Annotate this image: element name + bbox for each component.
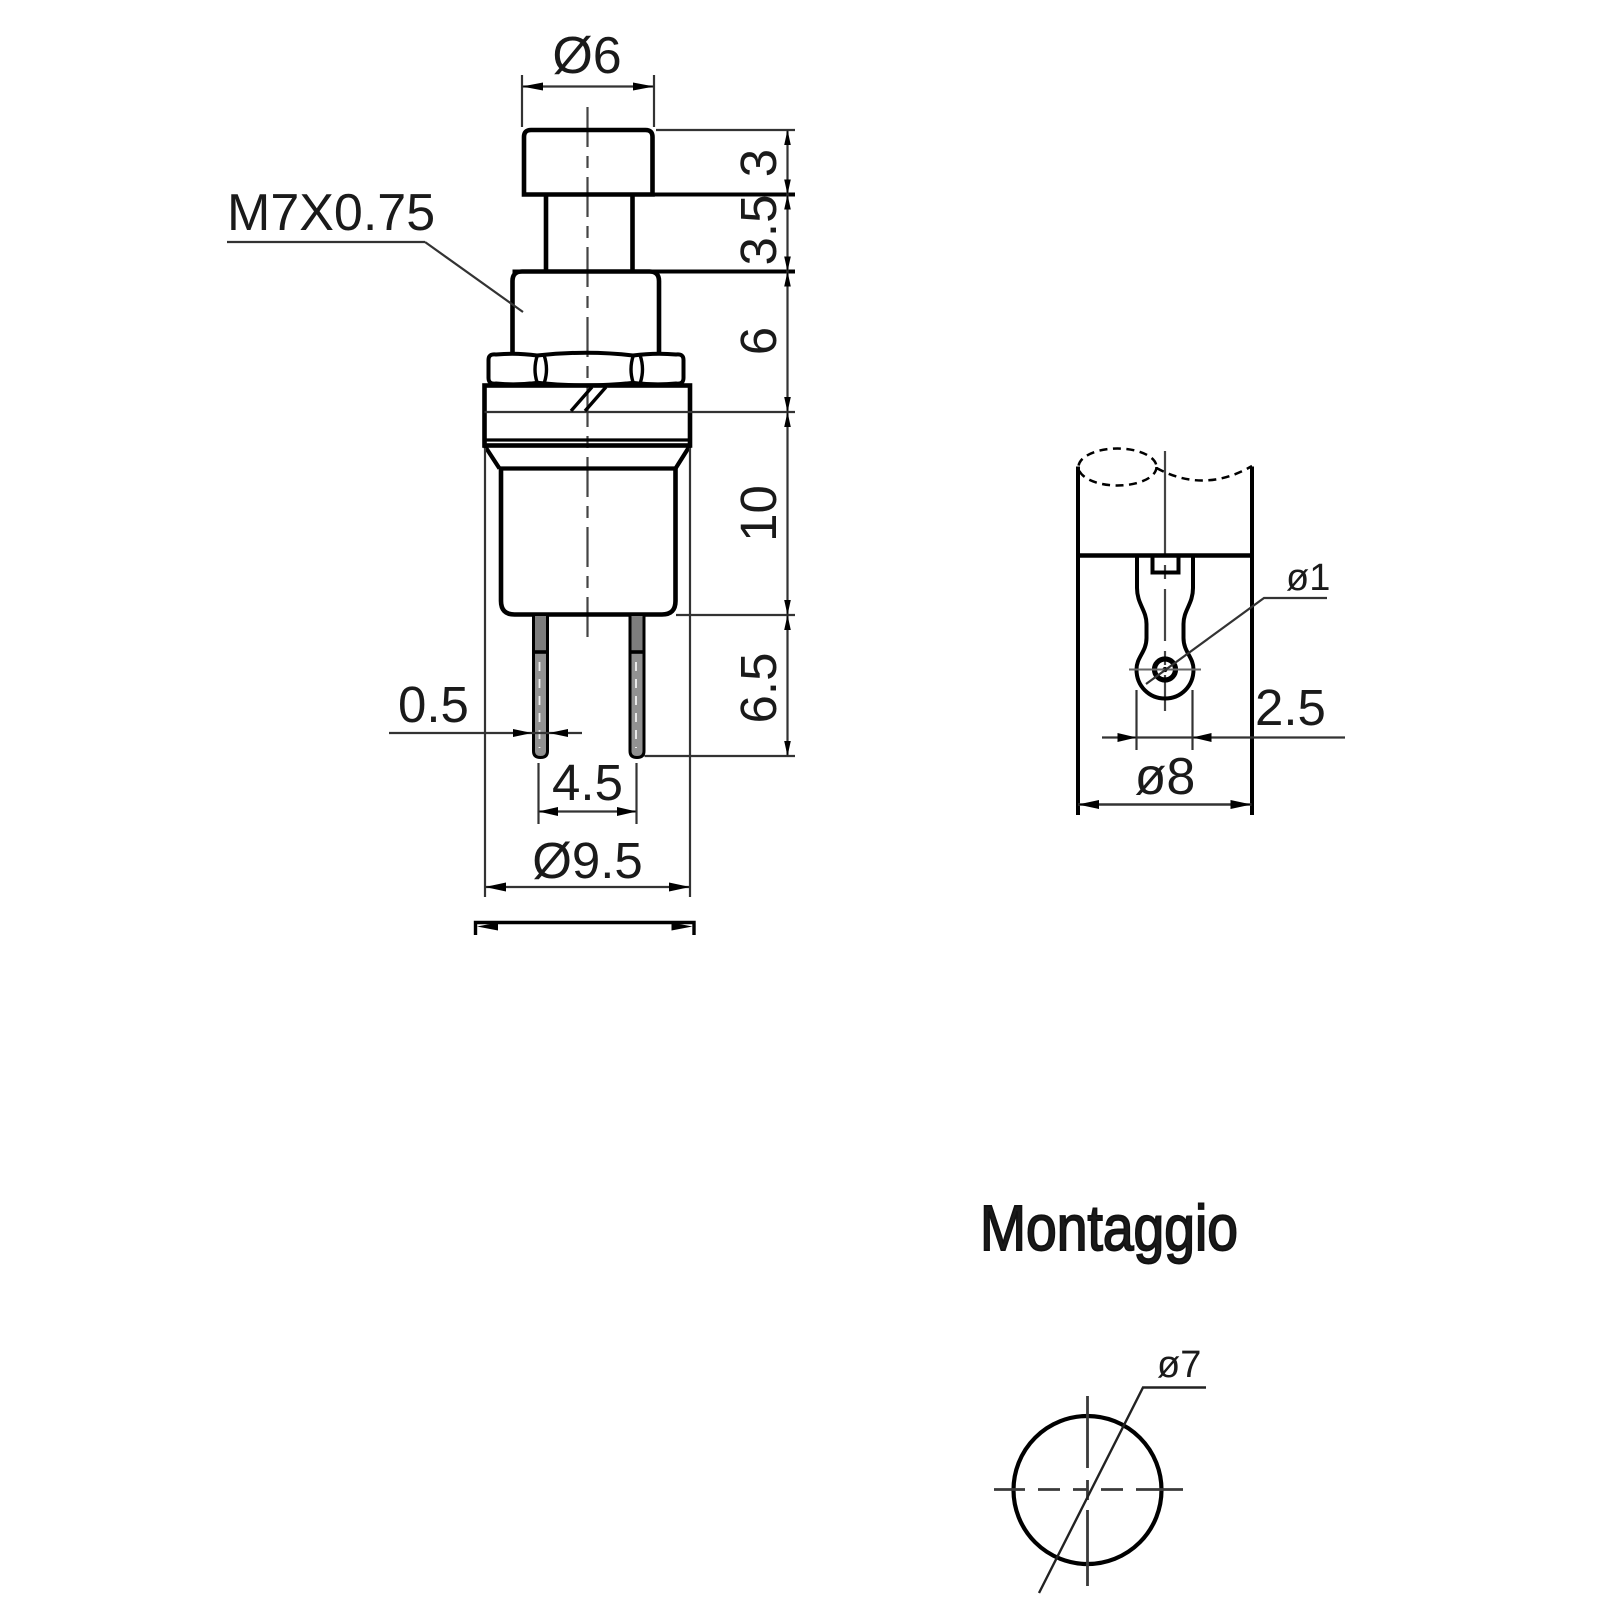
svg-text:ø7: ø7 — [1157, 1344, 1201, 1386]
svg-text:3.5: 3.5 — [730, 195, 787, 266]
svg-text:4.5: 4.5 — [552, 754, 623, 811]
svg-text:M7X0.75: M7X0.75 — [227, 184, 435, 242]
svg-text:Ø9.5: Ø9.5 — [532, 832, 643, 889]
svg-text:6: 6 — [730, 327, 787, 355]
svg-text:ø8: ø8 — [1135, 748, 1196, 806]
svg-text:0.5: 0.5 — [398, 676, 469, 733]
svg-text:Ø6: Ø6 — [552, 27, 621, 85]
svg-text:Montaggio: Montaggio — [980, 1192, 1238, 1264]
svg-text:3: 3 — [730, 149, 787, 177]
svg-text:10: 10 — [730, 485, 787, 542]
svg-text:2.5: 2.5 — [1255, 679, 1326, 736]
svg-text:ø1: ø1 — [1286, 557, 1330, 599]
svg-text:6.5: 6.5 — [730, 653, 787, 724]
